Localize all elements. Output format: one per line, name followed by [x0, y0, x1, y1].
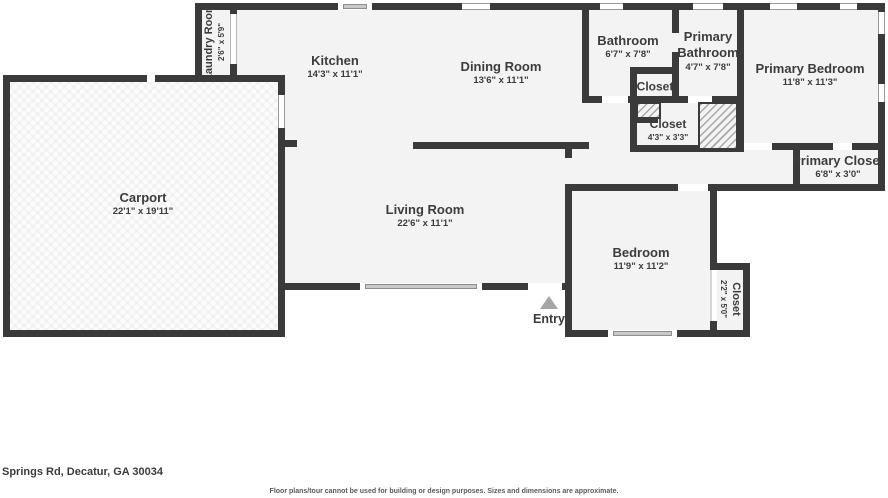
door-opening [602, 96, 628, 103]
window [840, 3, 857, 10]
room-label-bedroom-closet: Closet 2'2" x 5'0" [718, 280, 742, 318]
door-opening [833, 143, 852, 150]
wall [582, 3, 589, 103]
wall [710, 321, 717, 337]
door-opening [147, 75, 155, 82]
room-label-closet: Closet 4'3" x 3'3" [648, 117, 688, 143]
wall [230, 64, 237, 82]
room-label-bathroom: Bathroom 6'7" x 7'8" [597, 33, 658, 61]
wall [710, 184, 717, 270]
door-opening [744, 143, 772, 150]
floorplan-canvas: Laundry Room 2'6" x 5'9" Kitchen 14'3" x… [0, 0, 888, 498]
wall [3, 330, 285, 337]
wall [413, 142, 589, 149]
window [878, 84, 885, 102]
room-label-carport: Carport 22'1" x 19'11" [113, 190, 174, 218]
window [462, 3, 490, 10]
room-label-kitchen: Kitchen 14'3" x 11'1" [307, 53, 362, 81]
disclaimer-text: Floor plans/tour cannot be used for buil… [0, 488, 888, 495]
room-label-bedroom: Bedroom 11'9" x 11'2" [612, 245, 669, 273]
room-label-dining: Dining Room 13'6" x 11'1" [461, 59, 542, 87]
hatch-box [698, 102, 738, 150]
window [608, 330, 677, 337]
entry-door-opening [528, 283, 562, 290]
wall [565, 184, 885, 191]
window [878, 12, 885, 34]
window [600, 3, 623, 10]
wall [743, 263, 750, 337]
room-label-primary-closet: Primary Closet 6'8" x 3'0" [792, 153, 884, 181]
door-opening [230, 14, 237, 64]
wall [737, 3, 744, 150]
wall [565, 149, 572, 158]
room-label-hall-closet: Closet [637, 80, 674, 95]
window [278, 95, 285, 128]
entry-arrow-icon [540, 296, 558, 309]
wall [565, 184, 572, 337]
wall [3, 75, 10, 337]
entry-label: Entry [533, 312, 565, 326]
window [338, 3, 372, 10]
door-opening [710, 270, 717, 321]
window [693, 3, 723, 10]
wall [772, 143, 833, 150]
wall [285, 140, 297, 147]
wall [230, 3, 237, 14]
wall [195, 3, 202, 82]
door-opening [678, 184, 708, 191]
room-label-primary-bedroom: Primary Bedroom 11'8" x 11'3" [755, 61, 864, 89]
wall [3, 75, 285, 82]
window [770, 3, 797, 10]
room-label-laundry: Laundry Room 2'6" x 5'9" [203, 3, 227, 81]
room-label-primary-bathroom: Primary Bathroom 4'7" x 7'8" [675, 29, 741, 73]
address-text: Springs Rd, Decatur, GA 30034 [2, 466, 163, 478]
window [360, 283, 482, 290]
wall [589, 96, 600, 103]
room-label-living: Living Room 22'6" x 11'1" [386, 202, 465, 230]
